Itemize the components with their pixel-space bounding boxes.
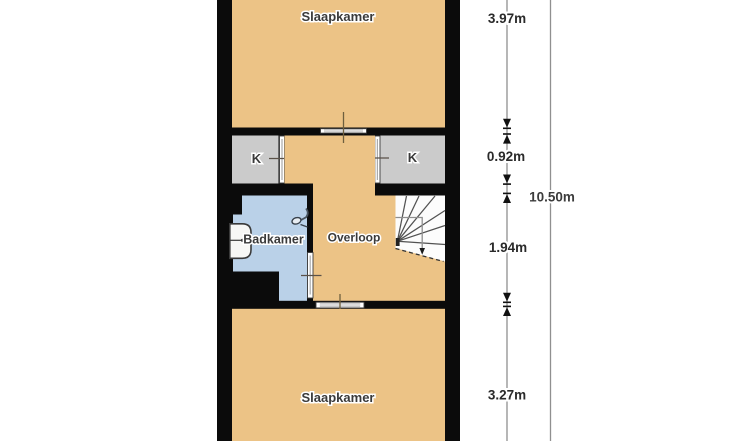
svg-text:0.92m: 0.92m [487,149,525,164]
svg-text:Slaapkamer: Slaapkamer [302,9,375,24]
svg-text:Badkamer: Badkamer [243,233,304,247]
svg-text:3.27m: 3.27m [488,388,526,403]
svg-text:1.94m: 1.94m [489,240,527,255]
svg-text:K: K [408,150,418,165]
svg-text:10.50m: 10.50m [529,190,575,205]
svg-text:K: K [252,151,262,166]
svg-text:3.97m: 3.97m [488,11,526,26]
svg-text:Slaapkamer: Slaapkamer [302,390,375,405]
svg-text:Overloop: Overloop [328,231,381,245]
